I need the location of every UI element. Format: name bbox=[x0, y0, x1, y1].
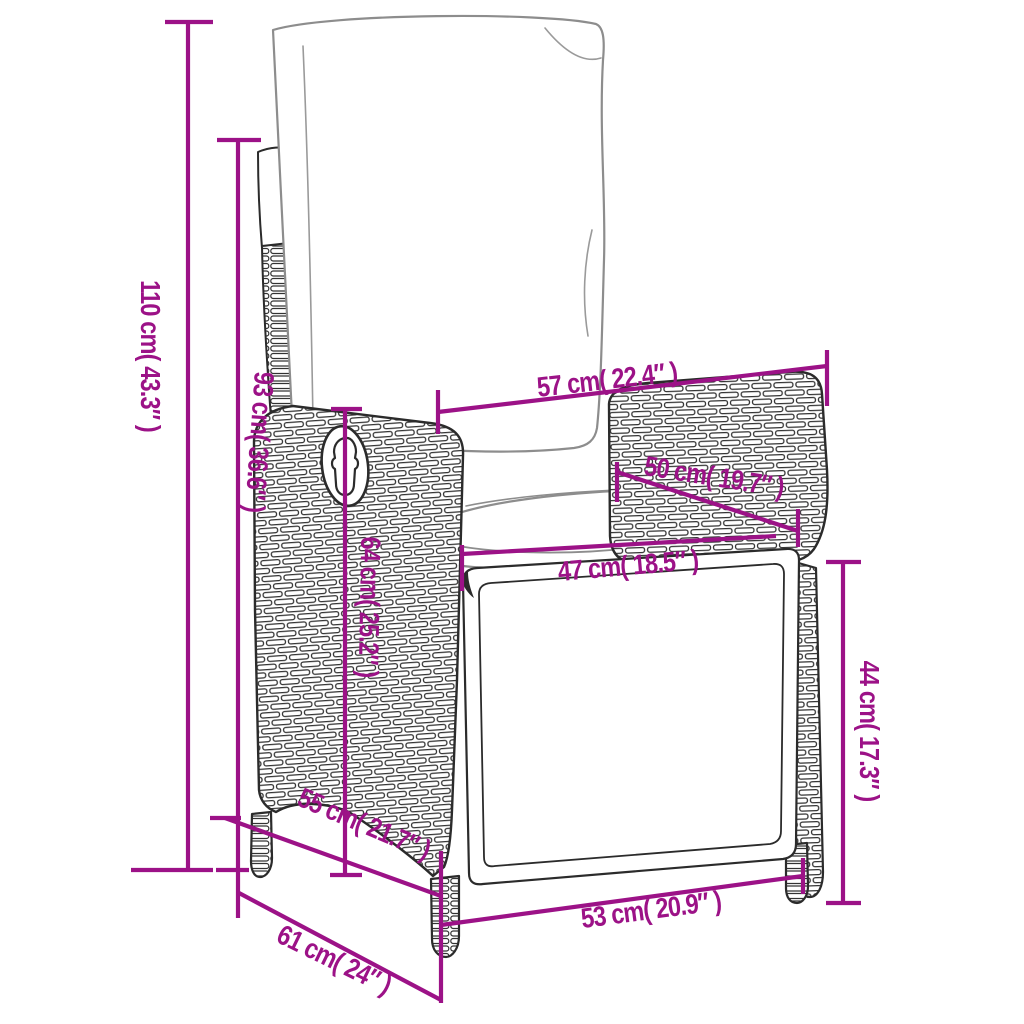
chair-illustration bbox=[0, 0, 1024, 1024]
dim-label-armrest-height: 64 cm( 25.2″ ) bbox=[352, 536, 386, 677]
dimension-diagram: 110 cm( 43.3″ ) 93 cm( 36.6″ ) 57 cm( 22… bbox=[0, 0, 1024, 1024]
front-leg bbox=[431, 876, 459, 957]
dim-label-overall-height: 110 cm( 43.3″ ) bbox=[134, 280, 166, 432]
dim-overall-height-line bbox=[131, 22, 213, 870]
dim-label-seat-height: 44 cm( 17.3″ ) bbox=[853, 661, 885, 802]
left-back-leg bbox=[251, 812, 272, 877]
seat-base-panel bbox=[463, 549, 799, 884]
